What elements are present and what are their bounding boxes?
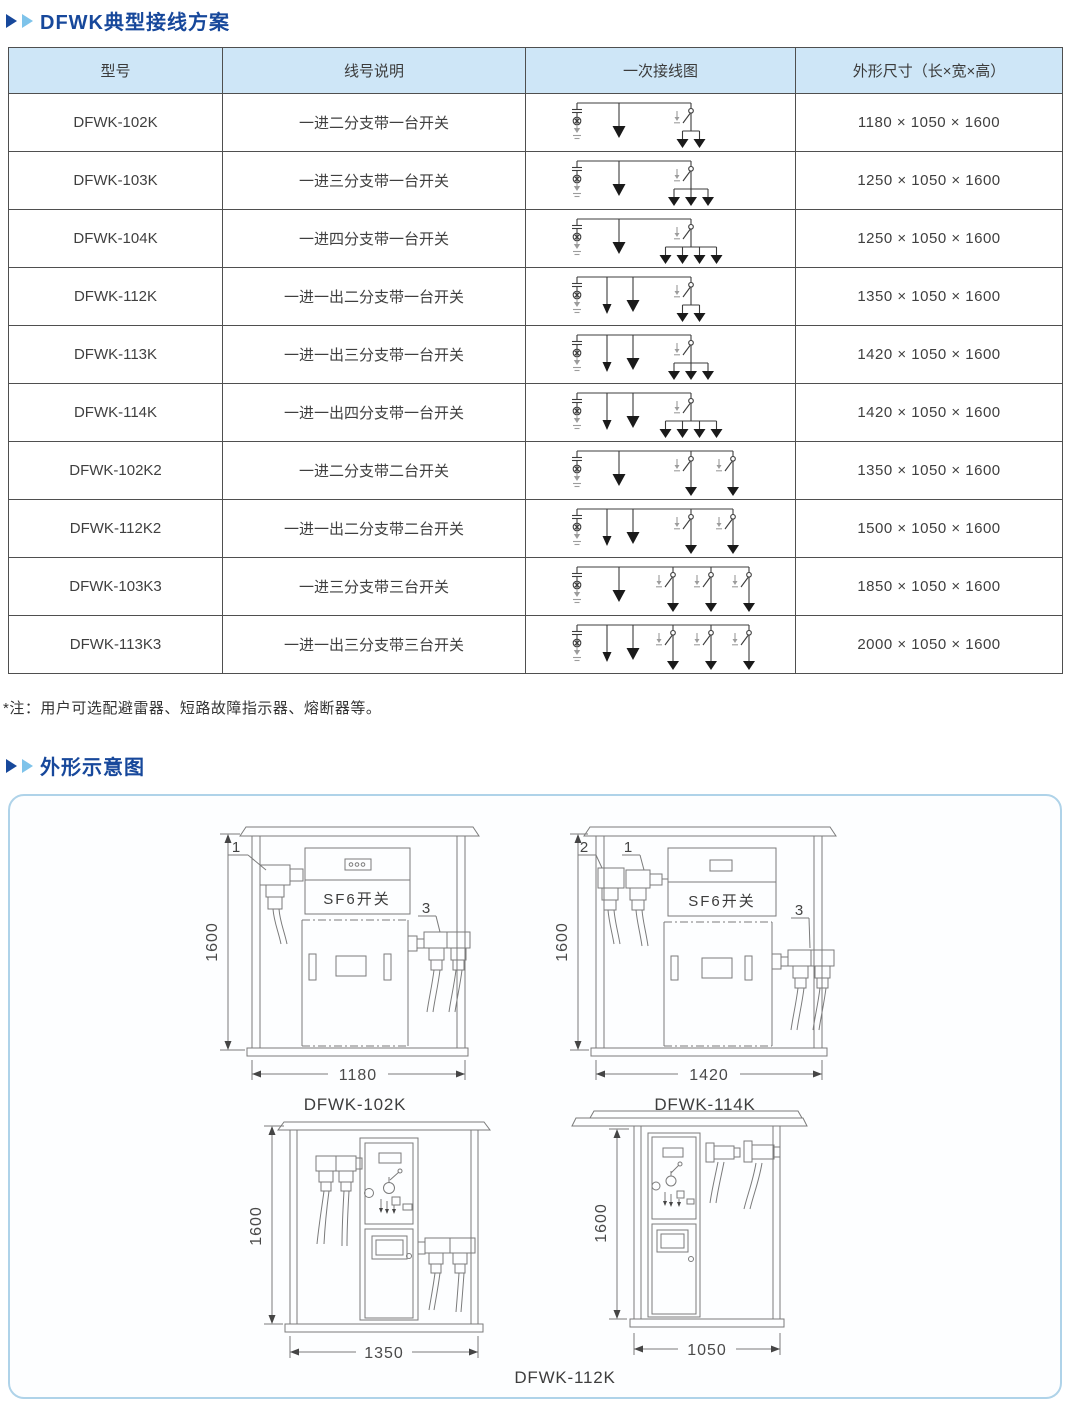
- meter-window: [657, 1230, 688, 1252]
- cabinet-front-112k: 1600 1350: [232, 1096, 542, 1376]
- model-cell: DFWK-102K: [9, 94, 223, 152]
- wiring-diagram: [541, 269, 781, 325]
- cabinet-front-102k: 1 3 1600 1180 SF6开关: [190, 808, 520, 1090]
- dimensions-cell: 1500 × 1050 × 1600: [796, 500, 1063, 558]
- cabinet-body: [252, 836, 465, 1048]
- cabinet-base: [247, 1048, 468, 1056]
- spec-table-body: DFWK-102K一进二分支带一台开关1180 × 1050 × 1600DFW…: [9, 94, 1063, 674]
- sf6-switch-label: SF6开关: [688, 893, 756, 910]
- wiring-diagram: [541, 385, 781, 441]
- table-row: DFWK-103K一进三分支带一台开关1250 × 1050 × 1600: [9, 152, 1063, 210]
- indicator-display: [663, 1148, 683, 1157]
- wiring-diagram-cell: [526, 268, 796, 326]
- dimensions-cell: 1420 × 1050 × 1600: [796, 384, 1063, 442]
- section-title-wiring: DFWK典型接线方案: [6, 6, 1070, 35]
- cabinet-body: [596, 836, 822, 1048]
- sf6-switch-label: SF6开关: [323, 891, 391, 908]
- cabinet-front-114k: 2 1 3 1600 1420 SF6开关: [540, 808, 870, 1090]
- wiring-diagram: [541, 95, 781, 151]
- cabinet-roof: [240, 827, 479, 836]
- callout-2: 2: [580, 839, 588, 856]
- cabinet-base: [630, 1319, 784, 1327]
- column-header: 型号: [9, 48, 223, 94]
- wiring-diagram-cell: [526, 384, 796, 442]
- model-cell: DFWK-113K: [9, 326, 223, 384]
- cabinet-base: [285, 1324, 483, 1332]
- cable-plug-right: [744, 1141, 752, 1162]
- cabinet-roof: [278, 1122, 490, 1130]
- wiring-diagram-cell: [526, 500, 796, 558]
- callout-1: 1: [624, 839, 632, 856]
- section-title-text: 外形示意图: [40, 751, 145, 780]
- indicator-display: [710, 860, 732, 871]
- arrow-right-icon: [22, 14, 33, 28]
- model-cell: DFWK-114K: [9, 384, 223, 442]
- model-cell: DFWK-113K3: [9, 616, 223, 674]
- table-row: DFWK-112K2一进一出二分支带二台开关1500 × 1050 × 1600: [9, 500, 1063, 558]
- cabinet-roof: [590, 1111, 802, 1118]
- description-cell: 一进一出三分支带一台开关: [223, 326, 526, 384]
- wiring-diagram-cell: [526, 94, 796, 152]
- spec-table-header-row: 型号线号说明一次接线图外形尺寸（长×宽×高）: [9, 48, 1063, 94]
- arrow-right-icon: [22, 759, 33, 773]
- model-cell: DFWK-112K2: [9, 500, 223, 558]
- page: DFWK典型接线方案 型号线号说明一次接线图外形尺寸（长×宽×高） DFWK-1…: [0, 6, 1070, 1399]
- dimensions-cell: 1250 × 1050 × 1600: [796, 152, 1063, 210]
- wiring-diagram-cell: [526, 152, 796, 210]
- description-cell: 一进三分支带一台开关: [223, 152, 526, 210]
- arrow-right-icon: [6, 14, 17, 28]
- cabinet-body: [290, 1130, 478, 1324]
- cable-plug-right: [706, 1143, 714, 1162]
- dimensions-cell: 1420 × 1050 × 1600: [796, 326, 1063, 384]
- description-cell: 一进一出二分支带一台开关: [223, 268, 526, 326]
- dimensions-cell: 1850 × 1050 × 1600: [796, 558, 1063, 616]
- dimensions-cell: 1350 × 1050 × 1600: [796, 442, 1063, 500]
- wiring-diagram-cell: [526, 616, 796, 674]
- cabinet-roof: [584, 827, 836, 836]
- description-cell: 一进三分支带三台开关: [223, 558, 526, 616]
- table-row: DFWK-112K一进一出二分支带一台开关1350 × 1050 × 1600: [9, 268, 1063, 326]
- width-dimension: 1420: [689, 1067, 729, 1084]
- column-header: 一次接线图: [526, 48, 796, 94]
- dimensions-cell: 1250 × 1050 × 1600: [796, 210, 1063, 268]
- model-cell: DFWK-103K: [9, 152, 223, 210]
- dimensions-cell: 1350 × 1050 × 1600: [796, 268, 1063, 326]
- cable-plug-left: [598, 868, 624, 888]
- callout-1: 1: [232, 839, 240, 856]
- column-header: 外形尺寸（长×宽×高）: [796, 48, 1063, 94]
- wiring-diagram: [541, 501, 781, 557]
- drawing-caption: DFWK-112K: [450, 1368, 680, 1388]
- height-dimension: 1600: [593, 1203, 610, 1243]
- width-dimension: 1050: [687, 1342, 727, 1359]
- wiring-diagram: [541, 617, 781, 673]
- dimensions-cell: 1180 × 1050 × 1600: [796, 94, 1063, 152]
- drawing-dfwk-114k: 2 1 3 1600 1420 SF6开关 DFWK-114K: [540, 808, 870, 1115]
- drawing-dfwk-102k: 1 3 1600 1180 SF6开关 DFWK-102K: [190, 808, 520, 1115]
- wiring-diagram-cell: [526, 326, 796, 384]
- column-header: 线号说明: [223, 48, 526, 94]
- description-cell: 一进一出四分支带一台开关: [223, 384, 526, 442]
- wiring-diagram: [541, 327, 781, 383]
- table-row: DFWK-113K3一进一出三分支带三台开关2000 × 1050 × 1600: [9, 616, 1063, 674]
- door-handle: [336, 956, 366, 976]
- outline-panel: 1 3 1600 1180 SF6开关 DFWK-102K: [8, 794, 1062, 1399]
- wiring-diagram: [541, 443, 781, 499]
- height-dimension: 1600: [554, 922, 571, 962]
- note-text: *注：用户可选配避雷器、短路故障指示器、熔断器等。: [3, 697, 1070, 718]
- table-row: DFWK-113K一进一出三分支带一台开关1420 × 1050 × 1600: [9, 326, 1063, 384]
- cabinet-base: [591, 1048, 827, 1056]
- cable-plug-left: [626, 870, 650, 888]
- width-dimension: 1350: [364, 1345, 404, 1362]
- callout-3: 3: [795, 902, 803, 919]
- arrow-right-icon: [6, 759, 17, 773]
- wiring-diagram: [541, 559, 781, 615]
- drawing-dfwk-112k-front: 1600 1350: [232, 1096, 542, 1381]
- wiring-diagram-cell: [526, 558, 796, 616]
- cabinet-side-112k: 1600 1050: [560, 1091, 870, 1376]
- wiring-diagram-cell: [526, 442, 796, 500]
- wiring-diagram: [541, 153, 781, 209]
- spec-table: 型号线号说明一次接线图外形尺寸（长×宽×高） DFWK-102K一进二分支带一台…: [8, 47, 1063, 674]
- model-cell: DFWK-104K: [9, 210, 223, 268]
- meter-window: [372, 1236, 407, 1259]
- description-cell: 一进二分支带一台开关: [223, 94, 526, 152]
- table-row: DFWK-102K2一进二分支带二台开关1350 × 1050 × 1600: [9, 442, 1063, 500]
- table-row: DFWK-104K一进四分支带一台开关1250 × 1050 × 1600: [9, 210, 1063, 268]
- callout-3: 3: [422, 900, 430, 917]
- section-title-outline: 外形示意图: [6, 751, 1070, 780]
- table-row: DFWK-103K3一进三分支带三台开关1850 × 1050 × 1600: [9, 558, 1063, 616]
- description-cell: 一进四分支带一台开关: [223, 210, 526, 268]
- table-row: DFWK-114K一进一出四分支带一台开关1420 × 1050 × 1600: [9, 384, 1063, 442]
- model-cell: DFWK-112K: [9, 268, 223, 326]
- cabinet-roof-eave: [572, 1118, 807, 1126]
- model-cell: DFWK-103K3: [9, 558, 223, 616]
- wiring-diagram-cell: [526, 210, 796, 268]
- model-cell: DFWK-102K2: [9, 442, 223, 500]
- drawing-dfwk-112k-side: 1600 1050: [560, 1091, 870, 1381]
- description-cell: 一进一出三分支带三台开关: [223, 616, 526, 674]
- table-row: DFWK-102K一进二分支带一台开关1180 × 1050 × 1600: [9, 94, 1063, 152]
- cable-plug-left: [260, 865, 290, 885]
- wiring-diagram: [541, 211, 781, 267]
- cabinet-body: [634, 1126, 780, 1319]
- switch-module: [648, 1133, 700, 1317]
- dimensions-cell: 2000 × 1050 × 1600: [796, 616, 1063, 674]
- indicator-display: [379, 1153, 401, 1163]
- description-cell: 一进一出二分支带二台开关: [223, 500, 526, 558]
- section-title-text: DFWK典型接线方案: [40, 6, 230, 35]
- description-cell: 一进二分支带二台开关: [223, 442, 526, 500]
- door-handle: [702, 958, 732, 978]
- height-dimension: 1600: [248, 1206, 265, 1246]
- width-dimension: 1180: [339, 1067, 377, 1084]
- height-dimension: 1600: [204, 922, 221, 962]
